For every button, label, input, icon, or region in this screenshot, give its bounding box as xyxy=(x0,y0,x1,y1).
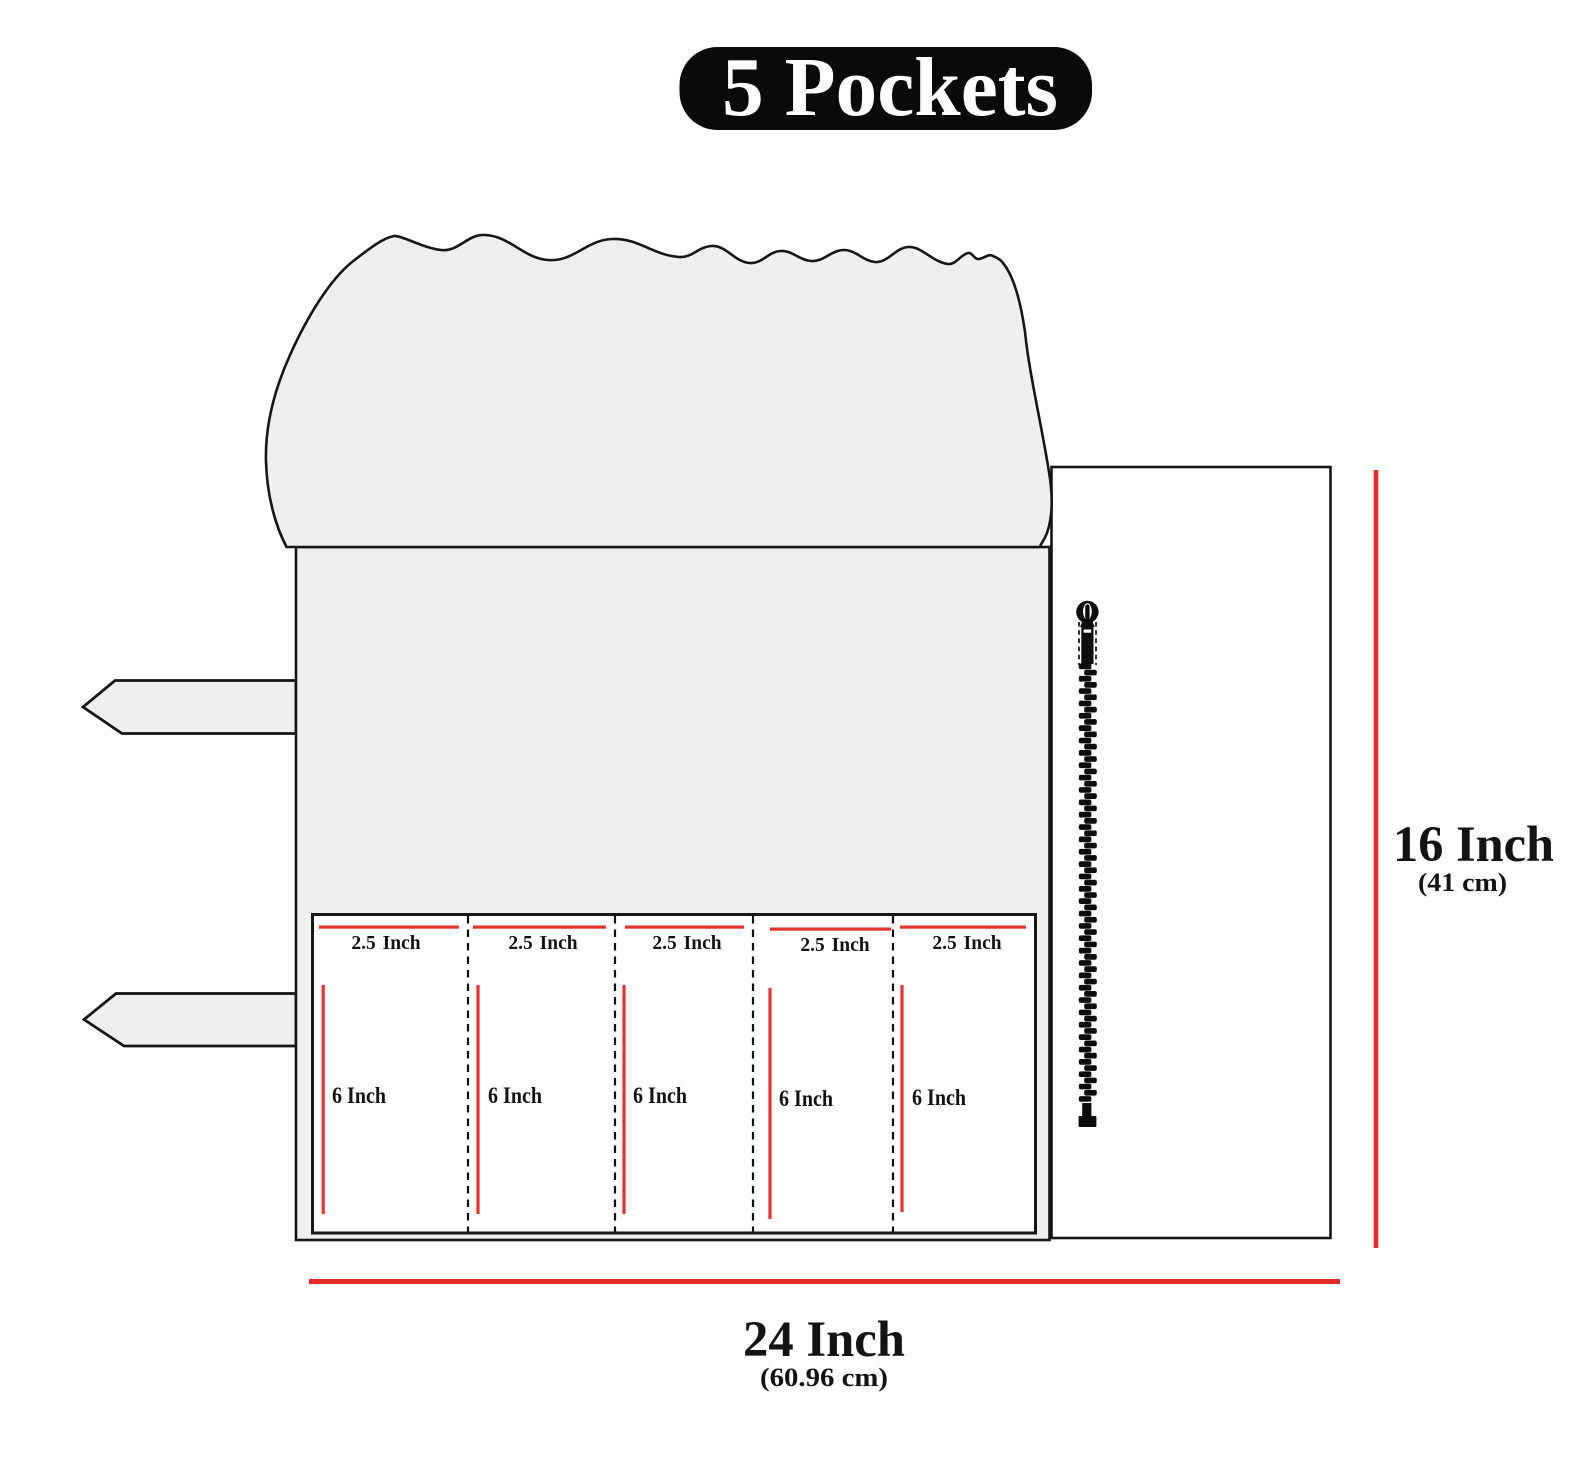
svg-text:2.5 Inch: 2.5 Inch xyxy=(351,933,420,954)
svg-text:2.5 Inch: 2.5 Inch xyxy=(800,935,869,956)
svg-text:6 Inch: 6 Inch xyxy=(779,1086,833,1112)
svg-text:2.5 Inch: 2.5 Inch xyxy=(932,933,1001,954)
svg-text:(41 cm): (41 cm) xyxy=(1418,868,1507,897)
svg-text:16 Inch: 16 Inch xyxy=(1393,817,1554,873)
svg-text:6 Inch: 6 Inch xyxy=(633,1083,687,1109)
svg-text:2.5 Inch: 2.5 Inch xyxy=(652,933,721,954)
svg-text:24 Inch: 24 Inch xyxy=(743,1312,905,1368)
svg-text:6 Inch: 6 Inch xyxy=(912,1085,966,1111)
svg-text:6 Inch: 6 Inch xyxy=(332,1083,386,1109)
svg-text:6 Inch: 6 Inch xyxy=(488,1083,542,1109)
svg-text:2.5 Inch: 2.5 Inch xyxy=(508,933,577,954)
svg-text:(60.96 cm): (60.96 cm) xyxy=(760,1363,888,1392)
svg-text:5 Pockets: 5 Pockets xyxy=(722,41,1058,134)
